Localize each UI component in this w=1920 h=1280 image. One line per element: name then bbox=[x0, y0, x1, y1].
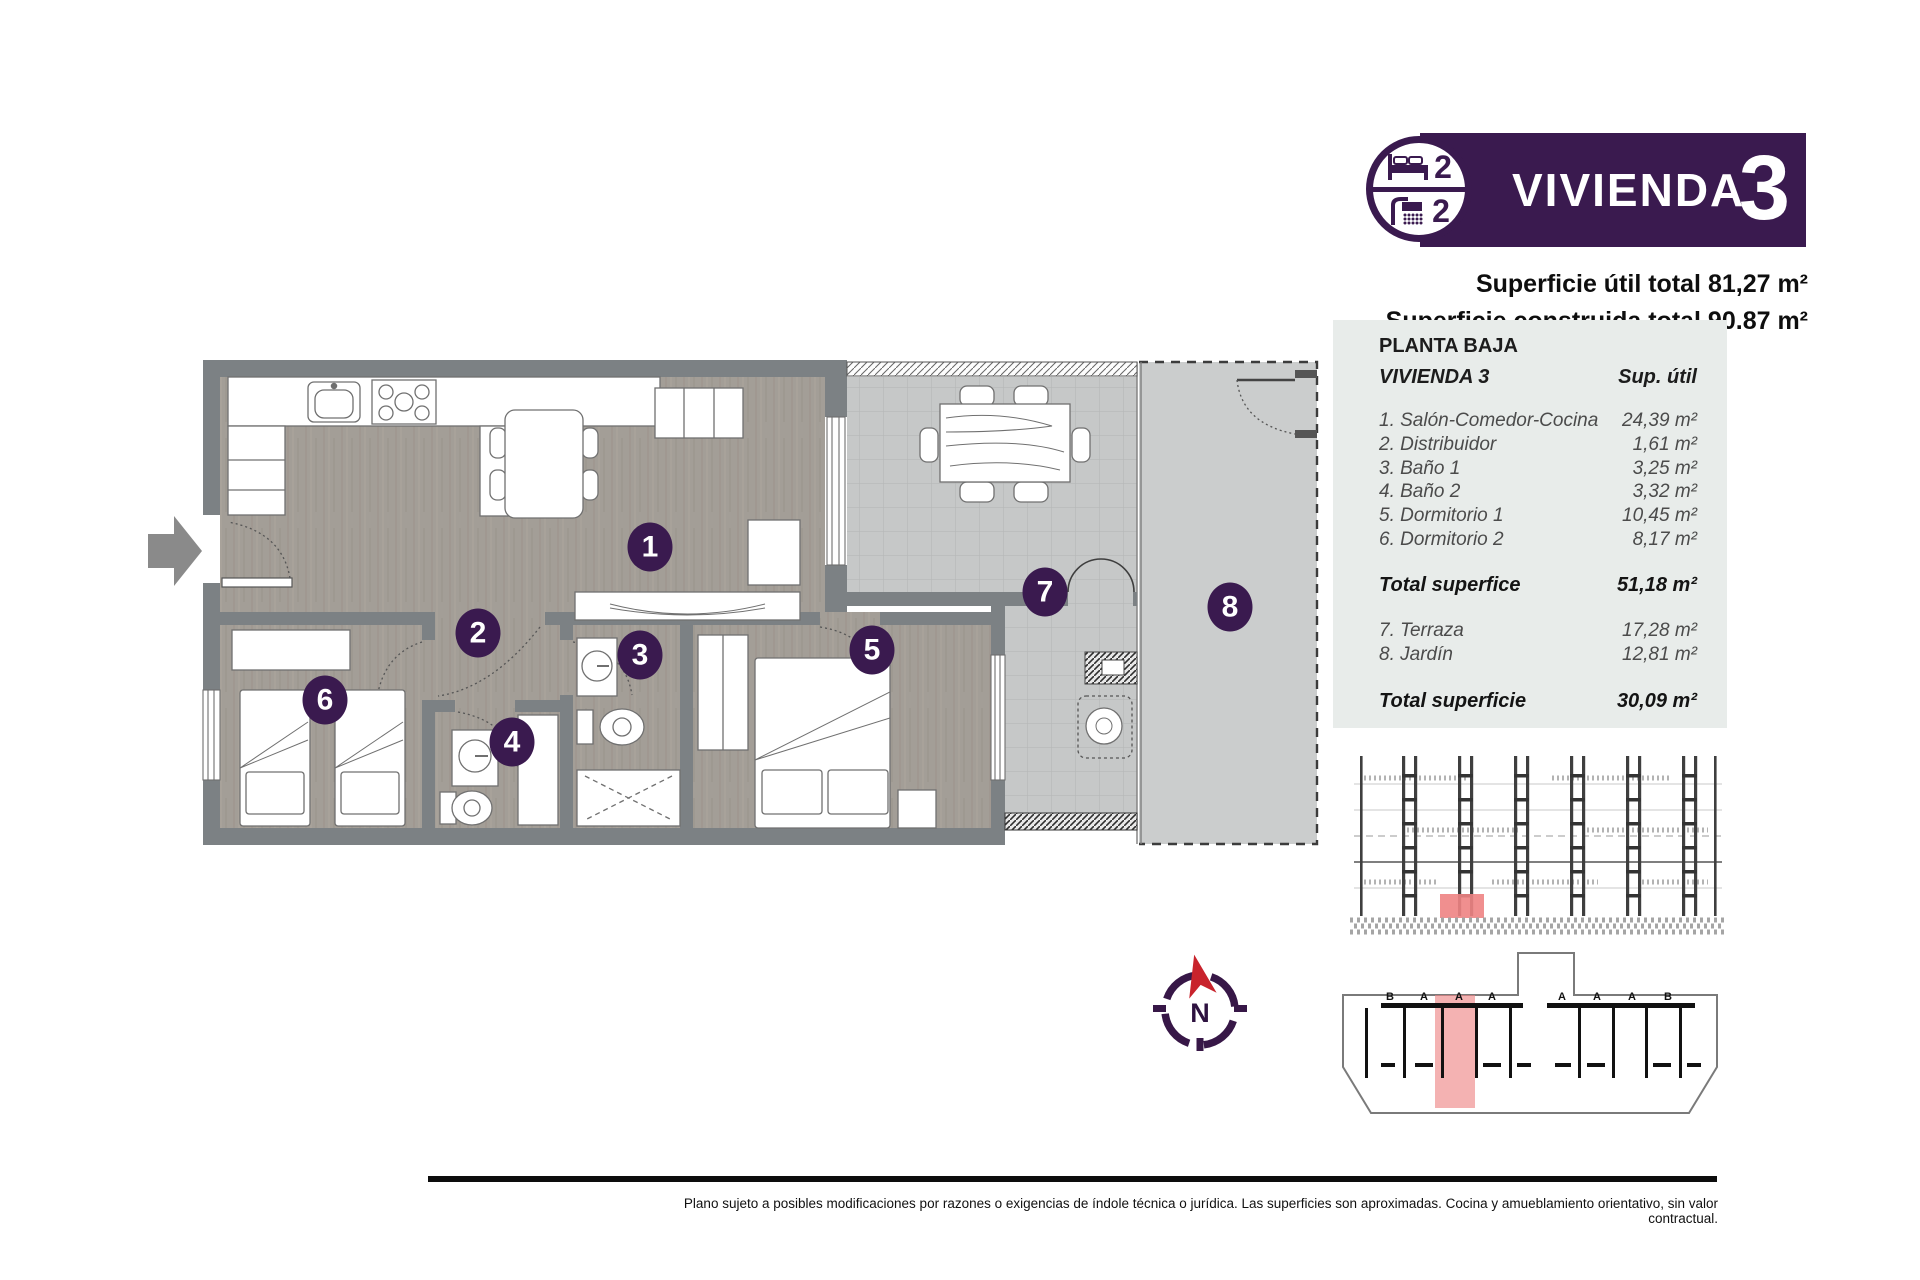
shower-tray bbox=[577, 770, 680, 826]
room-label: 6. Dormitorio 2 bbox=[1379, 528, 1504, 552]
table-row: 3. Baño 13,25 m² bbox=[1379, 457, 1697, 481]
rooms-badge: 2 2 bbox=[1366, 136, 1472, 242]
svg-text:A: A bbox=[1488, 991, 1496, 1003]
total-outdoor-row: Total superficie 30,09 m² bbox=[1379, 690, 1697, 713]
table-row: 2. Distribuidor1,61 m² bbox=[1379, 433, 1697, 457]
table-row: 4. Baño 23,32 m² bbox=[1379, 480, 1697, 504]
kitchen-sink bbox=[308, 382, 360, 422]
svg-text:A: A bbox=[1420, 991, 1428, 1003]
outdoor-table bbox=[1086, 708, 1122, 744]
single-bed bbox=[335, 690, 405, 826]
room-label: 8. Jardín bbox=[1379, 643, 1453, 667]
svg-text:B: B bbox=[1664, 991, 1672, 1003]
table-col-header: Sup. útil bbox=[1618, 365, 1697, 389]
armchair bbox=[748, 520, 800, 585]
table-row: 7. Terraza17,28 m² bbox=[1379, 619, 1697, 643]
compass-north-label: N bbox=[1190, 998, 1210, 1028]
area-table: PLANTA BAJA VIVIENDA 3 Sup. útil 1. Saló… bbox=[1333, 320, 1727, 728]
chair bbox=[1014, 482, 1048, 502]
elevation-highlight bbox=[1440, 894, 1484, 918]
room-area: 3,32 m² bbox=[1633, 480, 1697, 504]
svg-text:A: A bbox=[1628, 991, 1636, 1003]
room-area: 8,17 m² bbox=[1633, 528, 1697, 552]
svg-text:A: A bbox=[1558, 991, 1566, 1003]
room-area: 3,25 m² bbox=[1633, 457, 1697, 481]
single-bed bbox=[240, 690, 310, 826]
chair bbox=[1014, 386, 1048, 406]
room-area: 1,61 m² bbox=[1633, 433, 1697, 457]
total-value: 51,18 m² bbox=[1617, 574, 1697, 597]
room-list: 1. Salón-Comedor-Cocina24,39 m² 2. Distr… bbox=[1379, 409, 1697, 552]
svg-text:A: A bbox=[1455, 991, 1463, 1003]
entry-arrow-icon bbox=[148, 516, 202, 586]
building-outline bbox=[1343, 953, 1717, 1113]
chair bbox=[920, 428, 938, 462]
chair bbox=[490, 428, 506, 458]
double-bed bbox=[755, 658, 890, 828]
chair bbox=[960, 386, 994, 406]
kitchen-hob bbox=[372, 380, 436, 424]
building-elevation bbox=[1340, 748, 1735, 940]
kitchen-column bbox=[228, 426, 285, 515]
unit-bars bbox=[1365, 1003, 1701, 1078]
svg-text:B: B bbox=[1386, 991, 1394, 1003]
room-area: 17,28 m² bbox=[1622, 619, 1697, 643]
room-label: 5. Dormitorio 1 bbox=[1379, 504, 1504, 528]
chair bbox=[582, 470, 598, 500]
ground-texture bbox=[1350, 920, 1726, 932]
total-value: 30,09 m² bbox=[1617, 690, 1697, 713]
terrace-top-hatch bbox=[847, 362, 1137, 376]
room-label: 3. Baño 1 bbox=[1379, 457, 1460, 481]
room-badge-7: 7 bbox=[1023, 568, 1068, 617]
room-area: 12,81 m² bbox=[1622, 643, 1697, 667]
chair bbox=[1072, 428, 1090, 462]
bed-icon bbox=[1386, 153, 1430, 181]
wardrobe bbox=[232, 630, 350, 670]
room-badge-6: 6 bbox=[303, 676, 348, 725]
unit-number: 3 bbox=[1739, 135, 1790, 241]
chair bbox=[490, 470, 506, 500]
dining-table bbox=[505, 410, 583, 518]
shower-icon bbox=[1388, 196, 1428, 226]
north-compass: N bbox=[1150, 952, 1250, 1060]
room-label: 2. Distribuidor bbox=[1379, 433, 1496, 457]
total-label: Total superficie bbox=[1379, 690, 1526, 713]
sofa bbox=[655, 388, 743, 438]
room-label: 1. Salón-Comedor-Cocina bbox=[1379, 409, 1598, 433]
nightstand bbox=[898, 790, 936, 828]
room-label: 7. Terraza bbox=[1379, 619, 1464, 643]
room-area: 24,39 m² bbox=[1622, 409, 1697, 433]
chair bbox=[582, 428, 598, 458]
unit-labels: B A A A A A A B bbox=[1386, 991, 1672, 1003]
room-badge-5: 5 bbox=[850, 626, 895, 675]
room-badge-1: 1 bbox=[628, 523, 673, 572]
unit-banner: VIVIENDA 3 bbox=[1420, 133, 1806, 247]
table-row: 1. Salón-Comedor-Cocina24,39 m² bbox=[1379, 409, 1697, 433]
bedroom2-window bbox=[203, 690, 220, 780]
room-badge-8: 8 bbox=[1208, 583, 1253, 632]
terrace-edge-hatch bbox=[1005, 813, 1137, 830]
dining-set bbox=[490, 410, 598, 518]
table-row: 6. Dormitorio 28,17 m² bbox=[1379, 528, 1697, 552]
footer-disclaimer: Plano sujeto a posibles modificaciones p… bbox=[660, 1196, 1718, 1226]
bedroom1-window bbox=[991, 655, 1005, 780]
room-badge-3: 3 bbox=[618, 631, 663, 680]
unit-title: VIVIENDA bbox=[1512, 163, 1745, 217]
surface-util: Superficie útil total 81,27 m² bbox=[1100, 266, 1808, 303]
tv-board bbox=[575, 592, 800, 620]
wash-basin bbox=[577, 638, 617, 696]
room-badge-2: 2 bbox=[456, 609, 501, 658]
total-interior-row: Total superfice 51,18 m² bbox=[1379, 574, 1697, 597]
outdoor-list: 7. Terraza17,28 m² 8. Jardín12,81 m² bbox=[1379, 619, 1697, 667]
toilet bbox=[577, 709, 644, 745]
footer-divider bbox=[428, 1176, 1717, 1182]
room-area: 10,45 m² bbox=[1622, 504, 1697, 528]
table-row: 5. Dormitorio 110,45 m² bbox=[1379, 504, 1697, 528]
kitchen-counter bbox=[228, 377, 660, 426]
table-unit-label: VIVIENDA 3 bbox=[1379, 365, 1489, 389]
toilet bbox=[440, 791, 492, 825]
site-key-plan: B A A A A A A B bbox=[1335, 945, 1725, 1120]
living-sliding-door bbox=[827, 417, 845, 565]
plan-sheet: 1 2 3 4 5 6 7 8 VIVIENDA 3 2 bbox=[0, 0, 1920, 1280]
floor-plan bbox=[140, 340, 1320, 860]
chair bbox=[960, 482, 994, 502]
table-row: 8. Jardín12,81 m² bbox=[1379, 643, 1697, 667]
bathroom-count: 2 bbox=[1432, 195, 1450, 227]
room-badge-4: 4 bbox=[490, 718, 535, 767]
floor-label: PLANTA BAJA bbox=[1379, 334, 1697, 359]
room-label: 4. Baño 2 bbox=[1379, 480, 1460, 504]
bedroom-count: 2 bbox=[1434, 151, 1452, 183]
svg-text:A: A bbox=[1593, 991, 1601, 1003]
total-label: Total superfice bbox=[1379, 574, 1521, 597]
